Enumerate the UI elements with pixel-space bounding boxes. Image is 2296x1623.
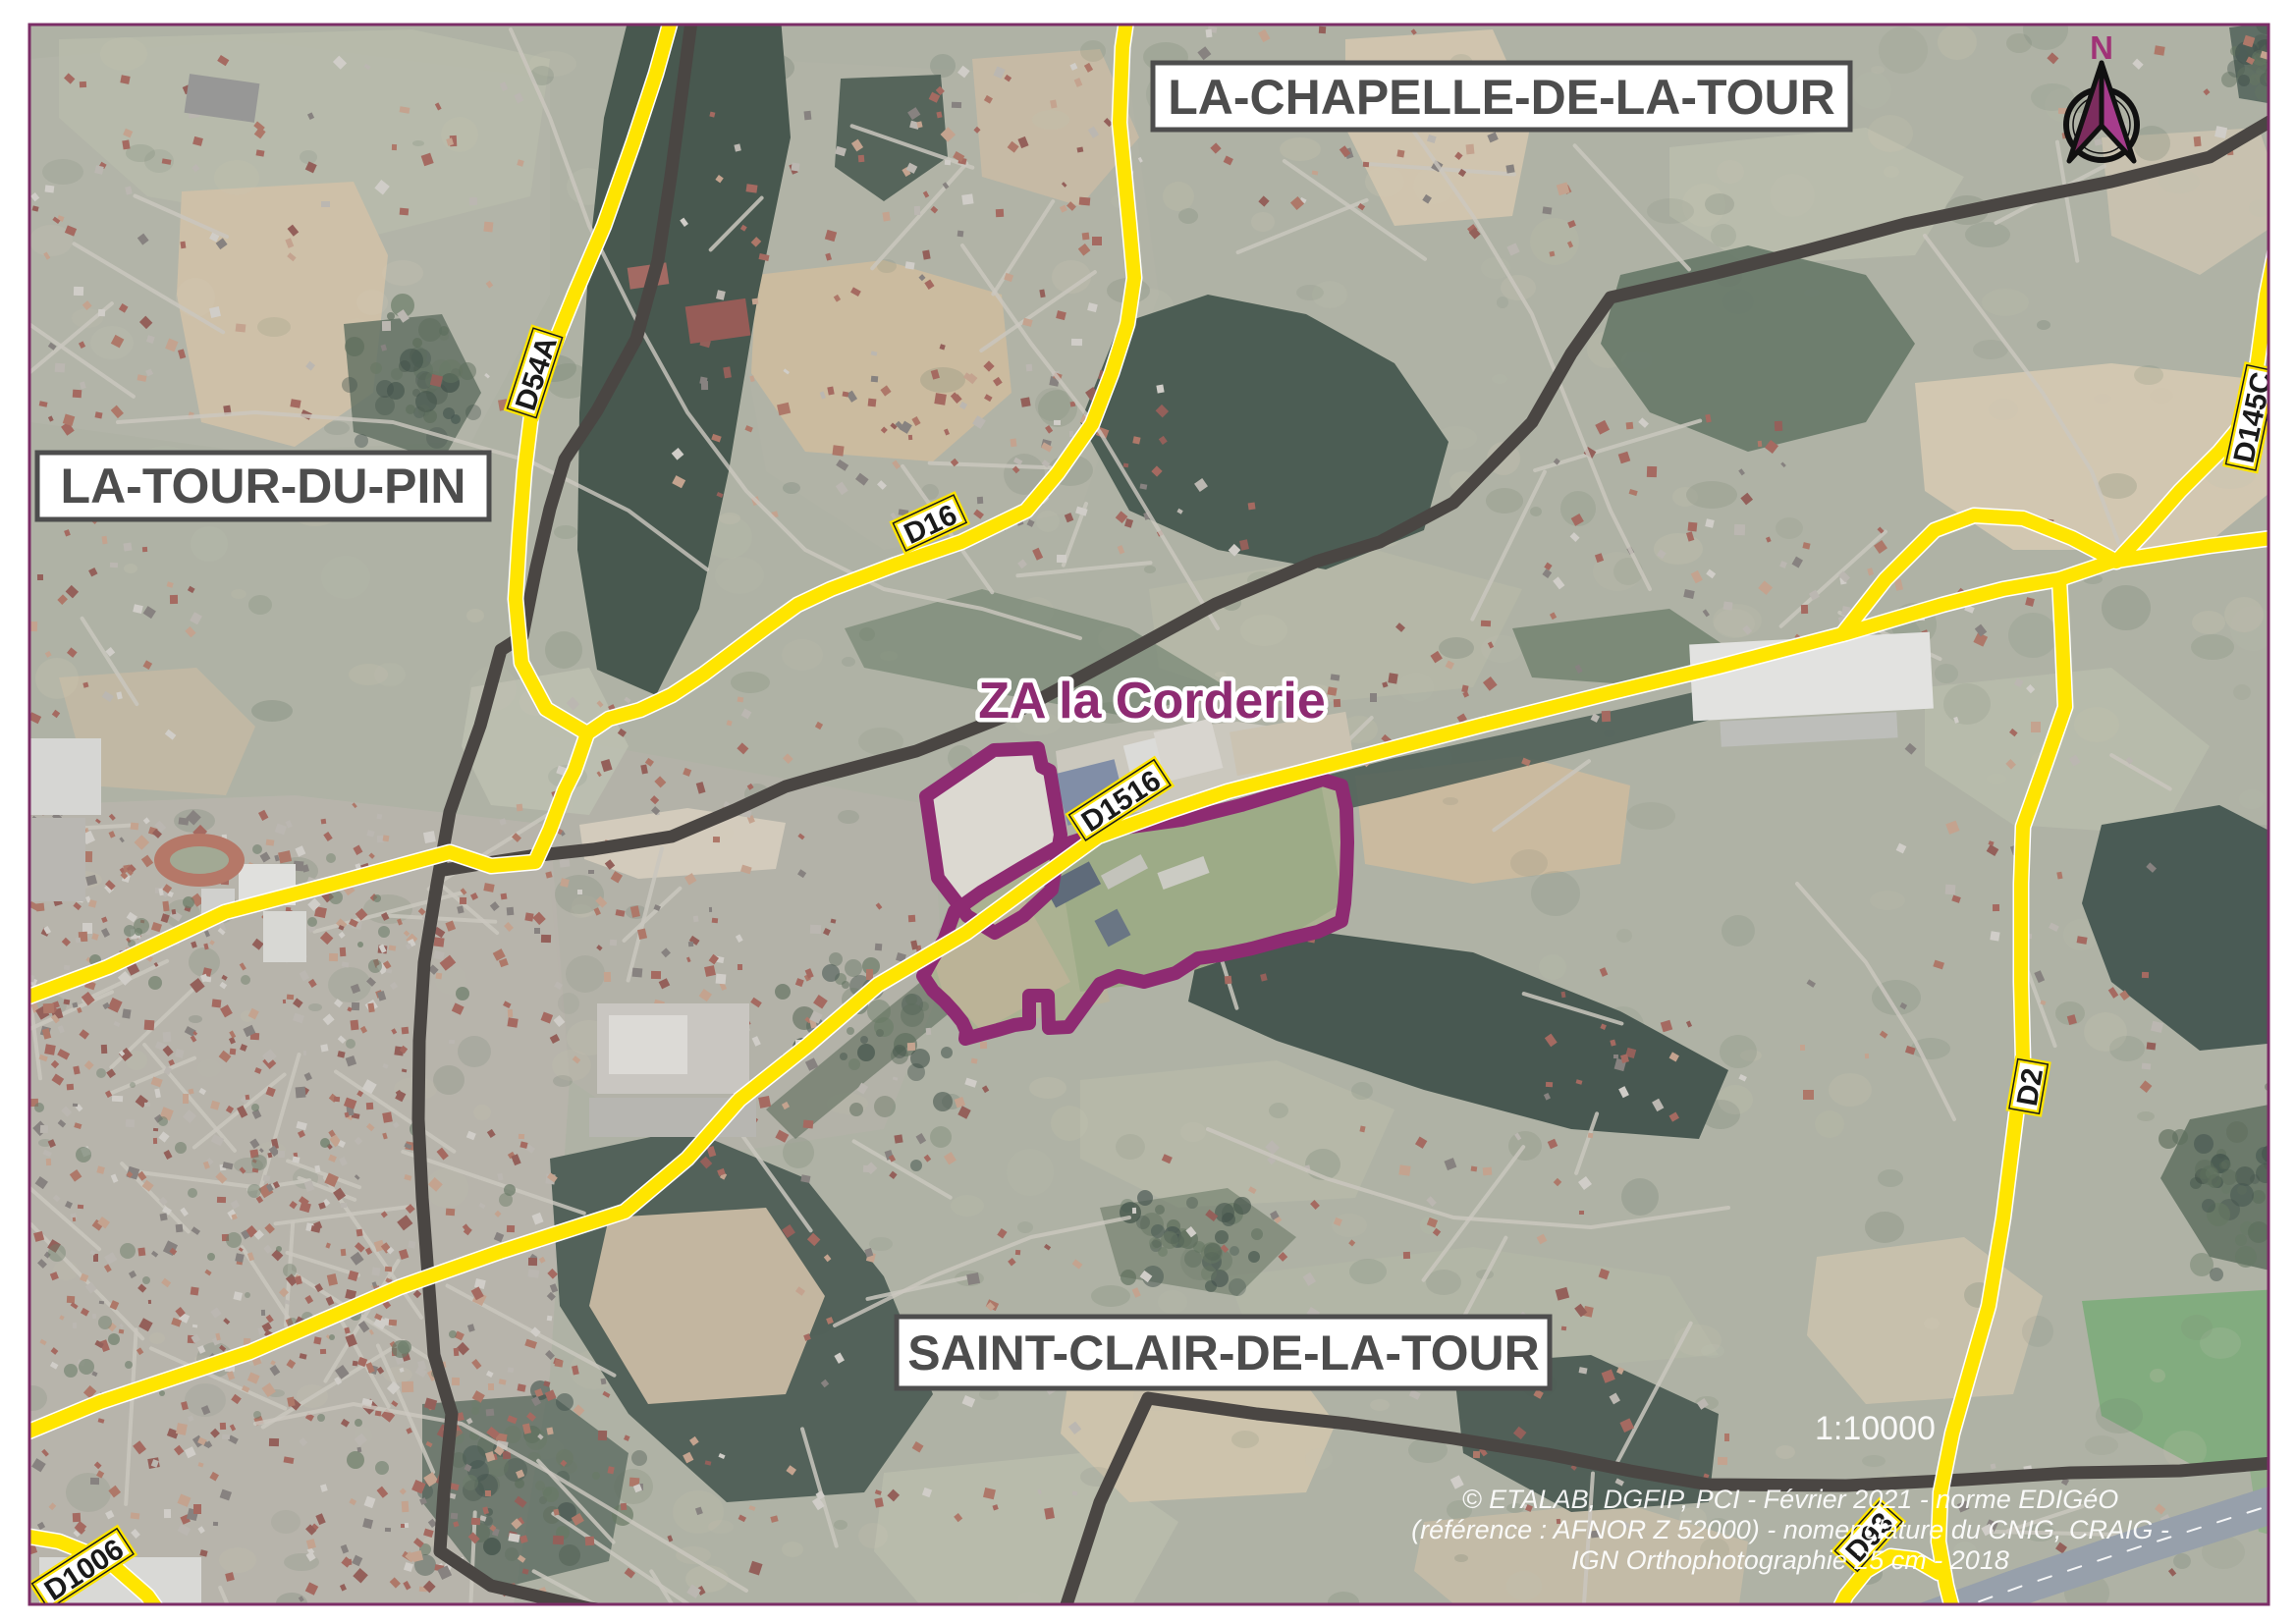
svg-text:N: N — [2090, 29, 2113, 66]
svg-text:(référence : AFNOR Z 52000) -: (référence : AFNOR Z 52000) - nomenclatu… — [1411, 1515, 2169, 1544]
svg-text:LA-TOUR-DU-PIN: LA-TOUR-DU-PIN — [61, 459, 466, 514]
svg-text:ZA la Corderie: ZA la Corderie — [978, 673, 1326, 730]
svg-text:1:10000: 1:10000 — [1815, 1410, 1936, 1447]
svg-text:LA-CHAPELLE-DE-LA-TOUR: LA-CHAPELLE-DE-LA-TOUR — [1168, 70, 1835, 125]
svg-text:D2: D2 — [2011, 1066, 2050, 1109]
svg-text:© ETALAB, DGFIP, PCI - Février: © ETALAB, DGFIP, PCI - Février 2021 - no… — [1462, 1485, 2119, 1514]
svg-text:IGN Orthophotographie 25 cm -: IGN Orthophotographie 25 cm - 2018 — [1571, 1545, 2009, 1575]
svg-text:SAINT-CLAIR-DE-LA-TOUR: SAINT-CLAIR-DE-LA-TOUR — [907, 1325, 1539, 1380]
